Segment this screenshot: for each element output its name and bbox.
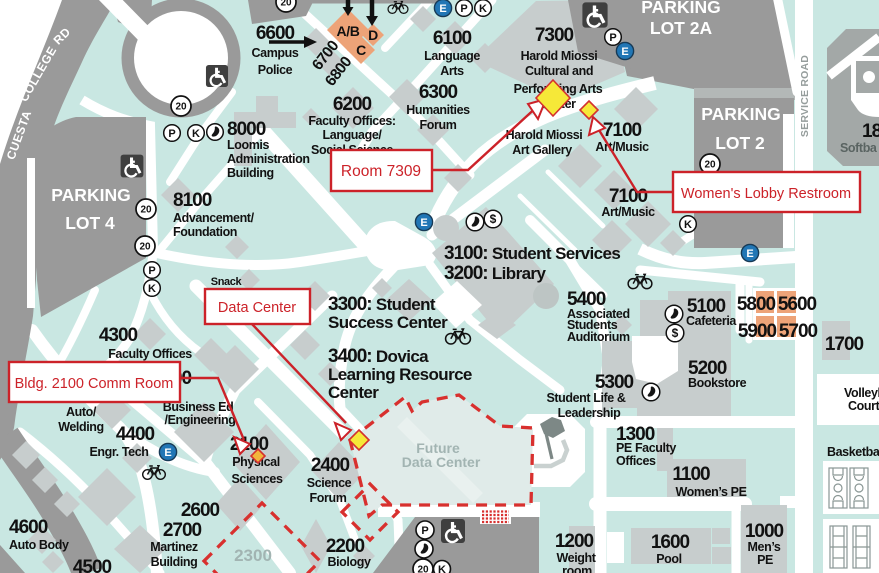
svg-text:E: E [164,447,171,459]
svg-text:1200: 1200 [555,531,594,552]
svg-text:K: K [479,3,487,15]
svg-text:$: $ [672,326,679,340]
svg-text:K: K [684,219,692,231]
svg-text:Faculty Offices:: Faculty Offices: [308,114,395,128]
svg-text:Engr. Tech: Engr. Tech [90,445,149,459]
svg-text:Building: Building [151,555,198,569]
svg-text:4400: 4400 [116,424,155,445]
svg-text:Center: Center [328,383,379,402]
svg-text:E: E [746,248,753,260]
svg-text:Biology: Biology [327,555,370,569]
svg-text:Cafeteria: Cafeteria [686,314,737,328]
svg-text:1600: 1600 [651,532,690,553]
svg-text:LOT 4: LOT 4 [65,213,115,233]
svg-text:$: $ [490,212,497,226]
svg-text:Art Gallery: Art Gallery [512,143,572,157]
svg-text:4500: 4500 [73,557,112,573]
svg-text:K: K [148,283,156,295]
svg-text:Data Center: Data Center [218,300,296,316]
svg-text:PARKING: PARKING [701,104,780,124]
svg-text:Harold Miossi: Harold Miossi [506,128,583,142]
svg-text:Volleyb: Volleyb [844,386,879,400]
svg-text:Women's Lobby Restroom: Women's Lobby Restroom [681,186,851,202]
svg-text:Forum: Forum [310,491,347,505]
svg-text:5300: 5300 [595,372,634,393]
svg-text:5600: 5600 [778,294,817,315]
svg-text:Cultural and: Cultural and [525,64,593,78]
svg-text:3200: Library: 3200: Library [444,263,546,284]
svg-text:Pool: Pool [656,552,681,566]
svg-text:4300: 4300 [99,325,138,346]
svg-text:room: room [562,564,592,573]
svg-text:PE Faculty: PE Faculty [616,441,676,455]
svg-text:Men’s: Men’s [748,540,781,554]
svg-text:K: K [192,128,200,140]
svg-text:5800: 5800 [737,294,776,315]
svg-text:Foundation: Foundation [173,225,237,239]
svg-text:Harold Miossi: Harold Miossi [521,49,598,63]
svg-text:C: C [356,42,366,58]
svg-text:Welding: Welding [58,420,104,434]
svg-text:1700: 1700 [825,334,864,355]
svg-text:LOT 2: LOT 2 [715,133,765,153]
svg-text:6100: 6100 [433,28,472,49]
svg-text:SERVICE ROAD: SERVICE ROAD [799,55,811,137]
svg-text:D: D [368,27,378,43]
svg-text:Student Life &: Student Life & [546,391,625,405]
svg-text:Arts: Arts [440,64,464,78]
svg-text:E: E [439,3,446,15]
svg-text:Leadership: Leadership [558,406,621,420]
svg-text:Martinez: Martinez [150,540,198,554]
svg-text:Basketball: Basketball [827,445,879,459]
svg-text:Weight: Weight [556,551,596,565]
svg-text:Building: Building [227,166,274,180]
svg-text:Science: Science [307,476,352,490]
svg-text:Sciences: Sciences [231,472,282,486]
svg-text:7100: 7100 [603,120,642,141]
svg-text:Snack: Snack [211,276,243,288]
svg-text:P: P [421,525,428,537]
svg-text:Auditorium: Auditorium [567,330,630,344]
svg-text:K: K [438,564,446,573]
svg-text:E: E [420,217,427,229]
svg-text:Success Center: Success Center [328,313,448,332]
svg-text:2300: 2300 [234,546,272,565]
svg-text:Loomis: Loomis [227,138,269,152]
svg-text:Data Center: Data Center [402,454,481,470]
svg-text:7300: 7300 [535,25,574,46]
svg-text:8100: 8100 [173,190,212,211]
svg-text:8000: 8000 [227,119,266,140]
svg-text:3400: Dovica: 3400: Dovica [328,346,429,367]
svg-text:Language/: Language/ [323,128,383,142]
svg-text:Forum: Forum [420,118,457,132]
svg-text:Learning Resource: Learning Resource [328,365,472,384]
svg-text:Art/Music: Art/Music [595,140,649,154]
svg-text:6200: 6200 [333,94,372,115]
svg-text:2400: 2400 [311,455,350,476]
svg-text:Offices: Offices [616,454,656,468]
svg-text:E: E [621,46,628,58]
svg-text:Auto Body: Auto Body [9,538,69,552]
svg-text:3300: Student: 3300: Student [328,294,436,315]
svg-text:Bldg. 2100 Comm Room: Bldg. 2100 Comm Room [15,376,174,392]
svg-text:P: P [148,265,155,277]
svg-text:Faculty Offices: Faculty Offices [108,347,192,361]
svg-text:PARKING: PARKING [51,185,130,205]
svg-text:Police: Police [258,63,293,77]
svg-text:Women’s PE: Women’s PE [675,485,746,499]
svg-text:3100: Student Services: 3100: Student Services [444,243,620,264]
svg-text:2600: 2600 [181,500,220,521]
svg-text:Auto/: Auto/ [66,405,97,419]
svg-text:Campus: Campus [252,46,299,60]
svg-text:Advancement/: Advancement/ [173,211,255,225]
svg-text:Softba: Softba [840,141,878,155]
svg-text:7100: 7100 [609,186,648,207]
svg-text:P: P [609,32,616,44]
svg-text:5700: 5700 [779,321,818,342]
svg-text:18: 18 [862,121,879,142]
svg-text:P: P [460,3,467,15]
svg-text:Art/Music: Art/Music [601,205,655,219]
svg-text:Room 7309: Room 7309 [341,163,421,180]
svg-text:PE: PE [757,553,773,567]
svg-text:P: P [168,128,175,140]
svg-text:Court: Court [848,399,879,413]
svg-text:A/B: A/B [337,23,360,39]
svg-text:1000: 1000 [745,521,784,542]
svg-text:LOT 2A: LOT 2A [650,18,713,38]
svg-text:Language: Language [424,49,480,63]
svg-text:1100: 1100 [672,464,710,485]
svg-text:PARKING: PARKING [641,0,720,17]
svg-text:2700: 2700 [163,520,202,541]
svg-text:5900: 5900 [738,321,777,342]
svg-text:/Engineering: /Engineering [165,413,236,427]
svg-text:Humanities: Humanities [406,103,470,117]
svg-text:Administration: Administration [227,152,310,166]
svg-text:2200: 2200 [326,536,365,557]
svg-text:4600: 4600 [9,517,48,538]
svg-text:Bookstore: Bookstore [688,376,747,390]
svg-text:6300: 6300 [419,82,458,103]
